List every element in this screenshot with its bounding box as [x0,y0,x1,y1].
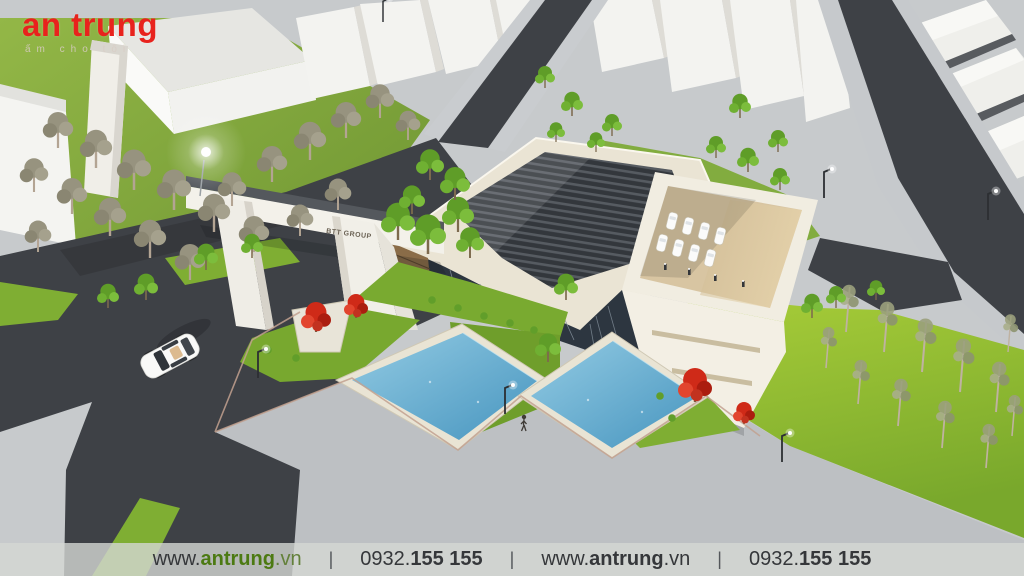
footer-phone-bold: 155 155 [410,548,482,570]
footer-website-bold: antrung [589,548,663,570]
footer-website-1: www.antrung.vn [153,548,302,571]
footer-website-2: www.antrung.vn [541,548,690,571]
footer-website-suffix: .vn [275,548,302,570]
footer-website-prefix: www. [153,548,201,570]
footer-separator: | [717,549,722,570]
footer-website-prefix: www. [541,548,589,570]
footer-phone-bold: 155 155 [799,548,871,570]
footer-separator: | [510,549,515,570]
footer-website-suffix: .vn [664,548,691,570]
logo: an trung ấm cho tôi [22,8,158,55]
logo-tagline: ấm cho tôi [22,45,158,55]
architectural-render: BTT GROUP [0,0,1024,576]
footer-phone-prefix: 0932. [360,548,410,570]
footer-phone-2: 0932.155 155 [749,548,871,571]
footer-phone-1: 0932.155 155 [360,548,482,571]
footer-separator: | [329,549,334,570]
brand-text: an trung [22,8,158,41]
footer-bar: www.antrung.vn | 0932.155 155 | www.antr… [0,543,1024,576]
footer-phone-prefix: 0932. [749,548,799,570]
footer-website-bold: antrung [200,548,274,570]
render-scene: BTT GROUP [0,0,1024,576]
